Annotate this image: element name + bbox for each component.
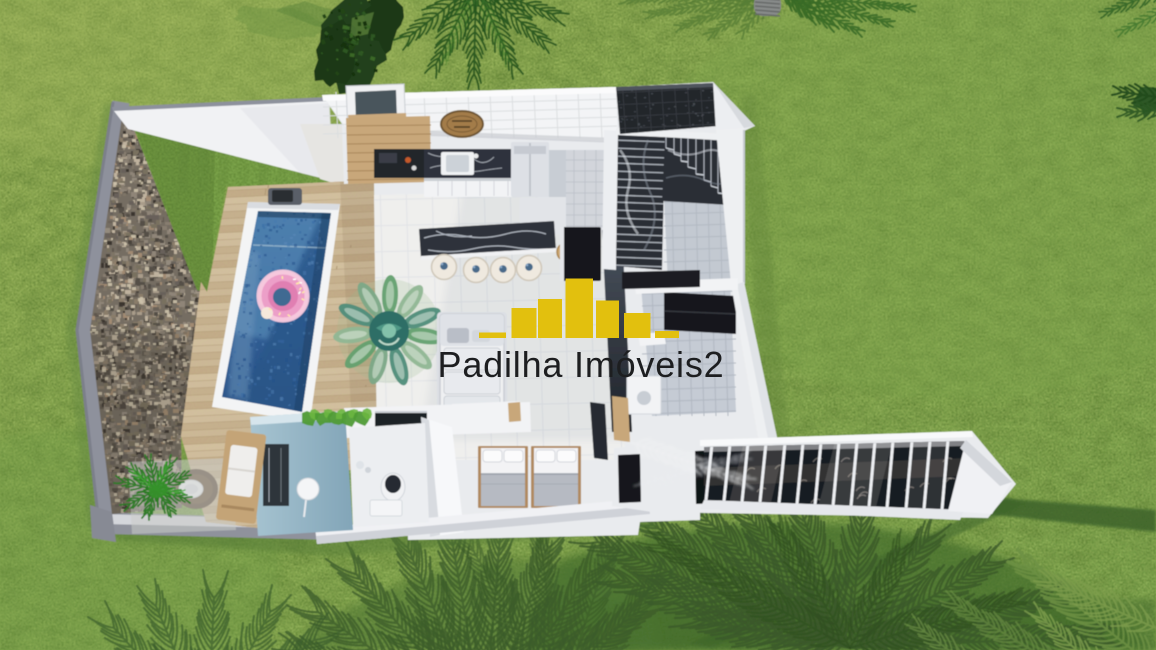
svg-text:Padilha Imóveis2: Padilha Imóveis2	[438, 344, 725, 385]
